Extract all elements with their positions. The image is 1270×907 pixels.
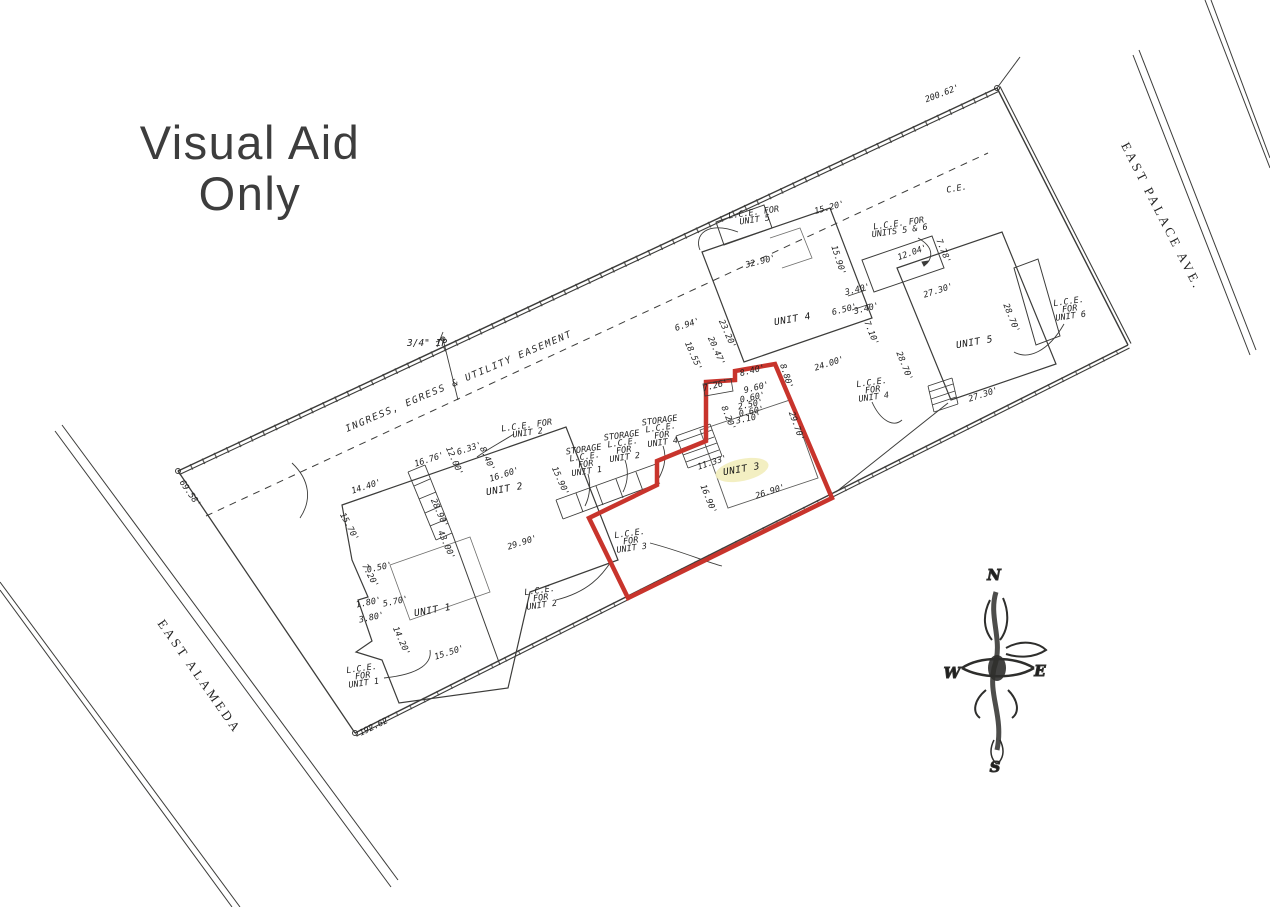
dimension-label: 24.00' — [813, 355, 845, 374]
dimension-label: 18.55' — [682, 340, 704, 372]
lce-label: STORAGEL.C.E.FORUNIT 1 — [565, 442, 606, 479]
dimension-label: 200.62' — [924, 83, 961, 105]
dimension-label: 15.50' — [433, 644, 465, 663]
lce-label: L.C.E.FORUNIT 4 — [856, 376, 890, 405]
dimension-label: 3.40' — [852, 301, 880, 317]
dimension-label: 15.20' — [813, 199, 845, 217]
lce-label: L.C.E.FORUNIT 1 — [346, 662, 380, 691]
unit-label-unit-5: UNIT 5 — [955, 334, 994, 351]
compass-north-label: N — [986, 566, 1002, 584]
dimension-label: 26.90' — [754, 483, 786, 502]
lce-label: L.C.E. FORUNITS 5 & 6 — [870, 215, 928, 240]
plat-drawing: Visual Aid Only — [0, 0, 1270, 907]
dimension-label: 16.90' — [697, 483, 718, 515]
unit-label-unit-1: UNIT 1 — [413, 602, 452, 619]
lce-label: L.C.E. FORUNIT 2 — [501, 418, 554, 442]
dimension-label: 14.40' — [350, 478, 382, 497]
iron-pipe-marker-label: 3/4" IP — [406, 338, 447, 349]
street-label-alameda: EAST ALAMEDA — [155, 616, 245, 736]
dimension-label: 15.90' — [549, 465, 571, 497]
dimension-label: 32.90' — [743, 253, 776, 270]
dimension-label: 8.40' — [477, 445, 497, 472]
dimension-label: 15.90' — [828, 244, 847, 276]
lce-label: STORAGEL.C.E.FORUNIT 2 — [603, 428, 644, 465]
lce-label: STORAGEL.C.E.FORUNIT 4 — [641, 413, 682, 450]
dimension-label: 43.00' — [435, 529, 457, 561]
street-label-palace: EAST PALACE AVE. — [1118, 140, 1206, 293]
dimension-label: 28.70' — [1000, 302, 1021, 334]
site-plan-svg: N W E S EAST PALACE AVE. EAST ALAMEDA IN… — [0, 0, 1270, 907]
lce-label: L.C.E.FORUNIT 3 — [614, 527, 648, 556]
dimension-label: 15.70' — [337, 511, 360, 543]
compass-west-label: W — [944, 664, 963, 682]
dimension-label: 28.90' — [428, 497, 450, 529]
dimension-label: 3.40' — [843, 282, 871, 298]
dimension-label: 1.80' — [355, 595, 382, 610]
compass-south-label: S — [990, 758, 1001, 776]
dimension-label: 14.20' — [390, 625, 412, 657]
dimension-label: 3.80' — [357, 610, 385, 625]
dimension-label: 27.30' — [922, 282, 954, 301]
dimension-label: 69.58' — [177, 478, 203, 509]
compass-east-label: E — [1033, 662, 1046, 680]
dimension-label: 20.47' — [705, 335, 727, 367]
lce-label: L.C.E.FORUNIT 6 — [1053, 295, 1087, 324]
dimension-label: 7.10' — [861, 320, 880, 347]
lce-label: L.C.E. FORUNIT 5 — [728, 205, 781, 229]
dimension-label: C.E. — [946, 182, 968, 195]
dimension-label: 7.78' — [933, 238, 952, 265]
dimension-label: 8.40' — [739, 363, 766, 379]
dimension-label: 192.62' — [358, 714, 395, 739]
dimension-labels: 200.62'C.E.15.20'32.90'15.90'12.04'7.78'… — [177, 83, 1022, 739]
dimension-label: 28.70' — [893, 350, 914, 382]
dimension-label: 16.76' — [413, 451, 445, 470]
dimension-label: 6.94' — [674, 316, 701, 333]
compass-rose: N W E S — [944, 566, 1047, 776]
dimension-label: 29.90' — [506, 534, 538, 553]
unit-label-unit-4: UNIT 4 — [773, 311, 812, 328]
